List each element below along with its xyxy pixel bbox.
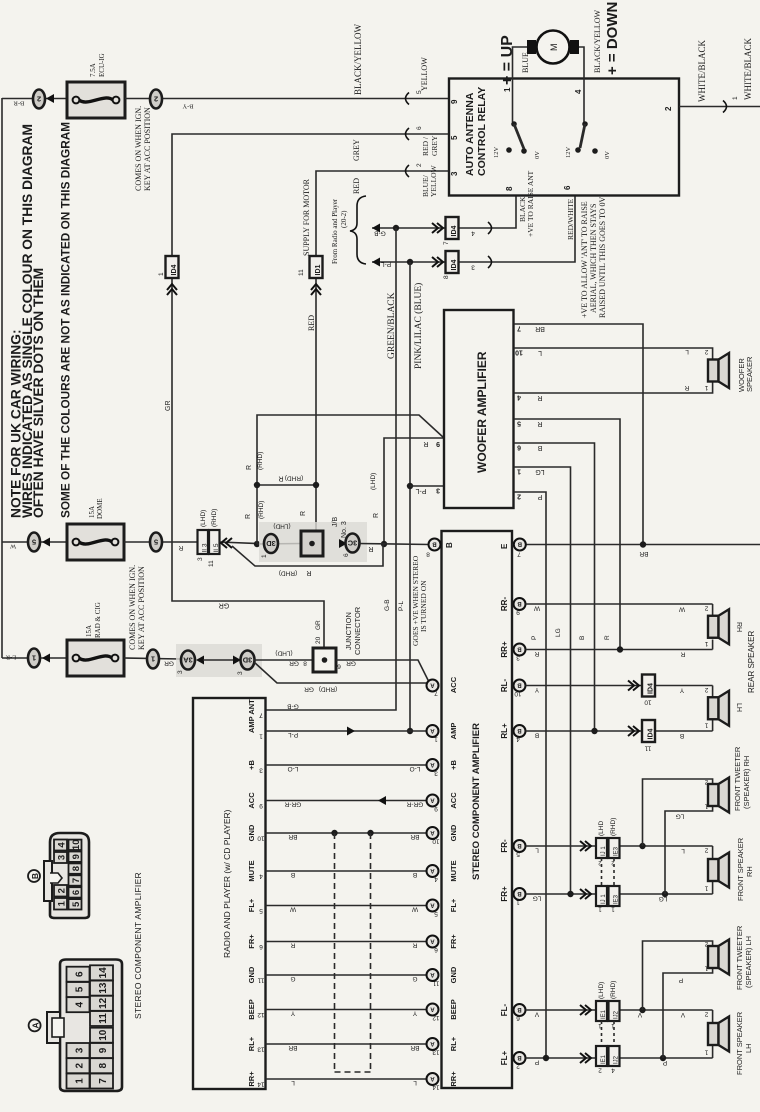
svg-text:7: 7 xyxy=(259,712,263,719)
svg-text:WOOFER AMPLIFIER: WOOFER AMPLIFIER xyxy=(475,351,489,473)
svg-text:RAISED UNTIL THIS GOES TO 0V: RAISED UNTIL THIS GOES TO 0V xyxy=(598,197,607,318)
svg-text:B: B xyxy=(517,1054,522,1060)
svg-text:(RHD): (RHD) xyxy=(258,501,265,519)
svg-text:RED: RED xyxy=(307,315,316,331)
svg-text:15A: 15A xyxy=(85,625,93,637)
svg-text:IE1: IE1 xyxy=(601,1054,607,1064)
svg-text:ID1: ID1 xyxy=(315,265,322,276)
svg-text:P-L: P-L xyxy=(381,261,392,268)
svg-text:JUNCTION: JUNCTION xyxy=(344,612,353,650)
svg-text:IJ2: IJ2 xyxy=(614,1055,620,1064)
svg-text:7: 7 xyxy=(517,325,521,332)
svg-text:COMES ON WHEN IGN.: COMES ON WHEN IGN. xyxy=(134,106,143,191)
svg-text:L-O: L-O xyxy=(288,765,299,772)
svg-text:6: 6 xyxy=(416,126,423,130)
svg-text:1: 1 xyxy=(151,654,155,663)
svg-text:IE3: IE3 xyxy=(614,846,620,856)
svg-text:G-B: G-B xyxy=(287,703,299,710)
svg-text:14: 14 xyxy=(432,1084,440,1091)
svg-text:BR: BR xyxy=(288,1044,297,1051)
svg-text:BEEP: BEEP xyxy=(247,999,256,1019)
svg-text:9: 9 xyxy=(450,99,459,104)
svg-text:RAD & CIG: RAD & CIG xyxy=(94,602,102,638)
svg-text:RL+: RL+ xyxy=(500,723,509,739)
svg-text:COMES ON WHEN IGN.: COMES ON WHEN IGN. xyxy=(128,565,137,650)
svg-text:+B: +B xyxy=(449,760,458,770)
svg-text:IE3: IE3 xyxy=(614,894,620,904)
svg-text:ACC: ACC xyxy=(449,676,458,693)
svg-text:IJ2: IJ2 xyxy=(614,1010,620,1019)
svg-text:B: B xyxy=(517,842,522,848)
svg-text:4: 4 xyxy=(516,736,520,743)
svg-text:4: 4 xyxy=(574,89,583,94)
svg-text:RL+: RL+ xyxy=(449,1036,458,1051)
svg-text:V: V xyxy=(534,1011,539,1018)
svg-text:7: 7 xyxy=(517,551,521,558)
svg-text:6: 6 xyxy=(516,1015,520,1022)
svg-text:6: 6 xyxy=(259,943,263,950)
svg-text:ID4: ID4 xyxy=(648,729,655,740)
svg-text:P-L: P-L xyxy=(288,731,299,738)
svg-text:L: L xyxy=(685,348,689,355)
svg-text:G-B: G-B xyxy=(384,599,391,611)
svg-text:GR: GR xyxy=(304,686,314,693)
svg-text:GND: GND xyxy=(247,966,256,983)
svg-text:GR: GR xyxy=(289,660,299,667)
svg-text:R: R xyxy=(604,635,611,640)
svg-text:8: 8 xyxy=(98,1062,109,1068)
svg-text:B: B xyxy=(579,636,586,640)
svg-text:7: 7 xyxy=(98,1078,109,1084)
svg-text:1: 1 xyxy=(261,554,268,558)
svg-text:PINK/LILAC (BLUE): PINK/LILAC (BLUE) xyxy=(413,283,424,369)
svg-text:1: 1 xyxy=(704,640,708,647)
svg-text:2: 2 xyxy=(75,1062,86,1068)
svg-text:1: 1 xyxy=(259,733,263,740)
svg-text:A: A xyxy=(430,727,435,733)
svg-text:B: B xyxy=(413,871,417,878)
svg-text:ACC: ACC xyxy=(247,792,256,809)
svg-text:STEREO COMPONENT AMPLIFIER: STEREO COMPONENT AMPLIFIER xyxy=(471,723,482,880)
svg-text:B: B xyxy=(517,681,522,687)
svg-text:8: 8 xyxy=(303,660,307,667)
svg-text:9: 9 xyxy=(516,609,520,616)
svg-text:V: V xyxy=(637,1011,642,1018)
svg-text:1: 1 xyxy=(57,900,68,906)
svg-text:+ = DOWN: + = DOWN xyxy=(604,2,621,75)
svg-text:P: P xyxy=(679,977,683,984)
svg-text:LG: LG xyxy=(533,895,542,902)
svg-text:2: 2 xyxy=(37,94,41,103)
svg-text:GR: GR xyxy=(164,660,174,667)
svg-text:B: B xyxy=(517,540,522,546)
svg-text:FL+: FL+ xyxy=(500,1050,509,1065)
svg-text:R: R xyxy=(373,513,380,518)
svg-text:LG: LG xyxy=(676,813,685,820)
svg-text:10: 10 xyxy=(644,699,652,706)
svg-text:AMP ANT: AMP ANT xyxy=(247,699,256,733)
svg-text:GND: GND xyxy=(449,824,458,841)
svg-text:L: L xyxy=(291,1079,295,1086)
svg-text:L-R: L-R xyxy=(5,654,16,661)
svg-text:1: 1 xyxy=(704,384,708,391)
svg-text:R: R xyxy=(368,545,373,552)
svg-text:STEREO COMPONENT AMPLIFIER: STEREO COMPONENT AMPLIFIER xyxy=(133,872,143,1019)
svg-text:(RHD): (RHD) xyxy=(319,686,337,693)
svg-text:8: 8 xyxy=(505,186,514,191)
svg-text:W: W xyxy=(678,606,685,613)
svg-text:9: 9 xyxy=(436,440,440,447)
svg-text:13: 13 xyxy=(432,1049,440,1056)
svg-text:(20-2): (20-2) xyxy=(340,210,348,228)
svg-text:II 5: II 5 xyxy=(213,543,220,552)
svg-text:11: 11 xyxy=(432,980,439,987)
svg-text:3C: 3C xyxy=(347,538,357,547)
svg-text:3A: 3A xyxy=(183,655,193,664)
svg-text:RADIO AND PLAYER (w/ CD PLAYER: RADIO AND PLAYER (w/ CD PLAYER) xyxy=(222,809,232,958)
svg-text:ID4: ID4 xyxy=(648,683,655,694)
svg-text:FL+: FL+ xyxy=(449,898,458,912)
svg-text:B: B xyxy=(445,542,454,548)
svg-text:RH: RH xyxy=(745,866,754,877)
svg-text:3D: 3D xyxy=(266,539,276,548)
svg-text:LH: LH xyxy=(744,1043,753,1053)
svg-text:6: 6 xyxy=(563,185,572,190)
svg-text:KEY AT ACC POSITION: KEY AT ACC POSITION xyxy=(137,566,146,650)
svg-text:AUTO ANTENNA: AUTO ANTENNA xyxy=(464,92,476,176)
svg-text:12: 12 xyxy=(98,997,109,1009)
svg-text:1: 1 xyxy=(75,1078,86,1084)
svg-text:R: R xyxy=(534,650,539,657)
svg-text:P: P xyxy=(535,1059,539,1066)
svg-text:RL-: RL- xyxy=(500,679,509,693)
svg-text:IJ 1: IJ 1 xyxy=(601,894,607,904)
svg-text:GND: GND xyxy=(449,966,458,983)
svg-text:12: 12 xyxy=(257,1011,265,1018)
svg-text:LH: LH xyxy=(735,703,742,712)
svg-text:B: B xyxy=(517,1006,522,1012)
svg-text:13: 13 xyxy=(98,982,109,994)
svg-text:3: 3 xyxy=(75,1047,86,1053)
svg-text:14: 14 xyxy=(98,967,109,979)
svg-text:B: B xyxy=(517,645,522,651)
svg-text:10: 10 xyxy=(432,838,440,845)
svg-text:WHITE/BLACK: WHITE/BLACK xyxy=(697,40,707,102)
svg-text:5: 5 xyxy=(154,537,158,546)
svg-text:5: 5 xyxy=(259,907,263,914)
svg-text:R: R xyxy=(684,384,689,391)
svg-text:(LHD): (LHD) xyxy=(275,650,292,657)
svg-text:RL+: RL+ xyxy=(247,1036,256,1051)
svg-text:2: 2 xyxy=(704,1011,708,1018)
svg-text:ACC: ACC xyxy=(449,792,458,809)
svg-text:3: 3 xyxy=(516,654,520,661)
svg-text:B: B xyxy=(537,444,542,451)
svg-text:AERIAL, WHICH THEN STAYS: AERIAL, WHICH THEN STAYS xyxy=(589,204,598,313)
svg-text:3: 3 xyxy=(434,770,438,777)
svg-text:4: 4 xyxy=(611,1067,615,1074)
svg-text:(RHD): (RHD) xyxy=(211,509,218,527)
svg-text:SPEAKER: SPEAKER xyxy=(745,356,754,392)
svg-text:(RHD): (RHD) xyxy=(279,570,297,577)
svg-text:BR: BR xyxy=(639,550,648,557)
svg-text:RR+: RR+ xyxy=(247,1071,256,1087)
svg-text:II 3: II 3 xyxy=(202,543,209,552)
svg-text:W: W xyxy=(533,605,540,612)
svg-text:5: 5 xyxy=(517,420,521,427)
svg-text:(RHD): (RHD) xyxy=(285,475,303,482)
svg-text:7: 7 xyxy=(71,878,82,883)
svg-text:ECU-IG: ECU-IG xyxy=(98,53,106,77)
svg-text:CONTROL RELAY: CONTROL RELAY xyxy=(476,87,488,176)
svg-text:5: 5 xyxy=(75,986,86,992)
svg-text:R: R xyxy=(537,394,542,401)
svg-text:GR: GR xyxy=(165,401,172,412)
svg-text:BLACK/YELLOW: BLACK/YELLOW xyxy=(593,9,602,73)
svg-text:RED /: RED / xyxy=(421,136,430,156)
svg-text:1: 1 xyxy=(434,736,438,743)
svg-text:P-L: P-L xyxy=(415,487,426,494)
svg-text:J/B: J/B xyxy=(332,517,339,527)
svg-text:Y: Y xyxy=(534,686,539,693)
svg-text:P-L: P-L xyxy=(398,601,405,612)
svg-text:OFTEN HAVE SILVER DOTS ON THEM: OFTEN HAVE SILVER DOTS ON THEM xyxy=(31,268,46,518)
svg-text:4: 4 xyxy=(259,873,263,880)
svg-text:1: 1 xyxy=(32,653,36,662)
svg-text:11: 11 xyxy=(98,1013,109,1024)
svg-text:RED/WHITE: RED/WHITE xyxy=(566,198,575,240)
svg-text:GR-R: GR-R xyxy=(406,801,423,808)
svg-text:5: 5 xyxy=(516,851,520,858)
svg-text:2: 2 xyxy=(517,493,521,500)
svg-text:FRONT TWEETER: FRONT TWEETER xyxy=(733,746,742,811)
svg-text:2: 2 xyxy=(704,348,708,355)
svg-text:BLACK/YELLOW: BLACK/YELLOW xyxy=(353,24,363,95)
svg-text:DOME: DOME xyxy=(96,498,104,519)
svg-text:10: 10 xyxy=(71,840,82,851)
svg-text:MUTE: MUTE xyxy=(247,860,256,881)
svg-text:FRONT SPEAKER: FRONT SPEAKER xyxy=(735,1011,744,1075)
svg-text:4: 4 xyxy=(434,876,438,883)
svg-text:A: A xyxy=(430,867,435,873)
svg-text:B: B xyxy=(432,540,437,546)
svg-text:6: 6 xyxy=(75,971,86,977)
svg-text:B-R: B-R xyxy=(13,100,25,107)
svg-text:3D: 3D xyxy=(242,655,252,664)
svg-text:2: 2 xyxy=(598,1067,602,1074)
svg-text:1: 1 xyxy=(516,899,520,906)
svg-text:A: A xyxy=(430,681,435,687)
svg-text:ID4: ID4 xyxy=(451,260,458,271)
svg-text:L-O: L-O xyxy=(410,765,421,772)
svg-text:(LHD): (LHD) xyxy=(370,473,377,490)
svg-text:4: 4 xyxy=(75,1001,86,1007)
svg-text:3: 3 xyxy=(197,557,204,561)
svg-text:SUPPLY FOR MOTOR: SUPPLY FOR MOTOR xyxy=(302,178,311,256)
svg-text:4: 4 xyxy=(57,842,68,848)
svg-text:3: 3 xyxy=(177,670,184,674)
svg-text:11: 11 xyxy=(298,269,305,276)
svg-text:2: 2 xyxy=(704,686,708,693)
svg-text:14: 14 xyxy=(257,1081,265,1088)
svg-text:BR: BR xyxy=(288,833,297,840)
svg-text:4: 4 xyxy=(471,230,475,237)
svg-text:(LHD): (LHD) xyxy=(273,523,290,530)
svg-text:15A: 15A xyxy=(88,506,96,518)
svg-text:P: P xyxy=(531,636,538,640)
svg-text:11: 11 xyxy=(257,977,264,984)
svg-text:FR-: FR- xyxy=(500,839,509,853)
svg-text:R: R xyxy=(246,465,253,470)
svg-text:GND: GND xyxy=(247,824,256,841)
svg-text:6: 6 xyxy=(517,444,521,451)
svg-text:A: A xyxy=(430,1040,435,1046)
svg-text:A: A xyxy=(430,971,435,977)
svg-text:6: 6 xyxy=(337,663,341,670)
svg-text:A: A xyxy=(430,796,435,802)
svg-text:IS TURNED ON: IS TURNED ON xyxy=(419,580,428,632)
svg-text:Y: Y xyxy=(679,687,684,694)
svg-text:IE1: IE1 xyxy=(601,1009,607,1019)
svg-text:FRONT TWEETER: FRONT TWEETER xyxy=(735,925,744,990)
svg-text:P: P xyxy=(537,493,542,500)
svg-text:BEEP: BEEP xyxy=(449,999,458,1019)
svg-text:10: 10 xyxy=(98,1029,109,1041)
svg-text:V: V xyxy=(680,1011,685,1018)
svg-text:12V: 12V xyxy=(565,147,572,159)
svg-text:FR+: FR+ xyxy=(247,934,256,949)
svg-text:GR-R: GR-R xyxy=(284,801,301,808)
svg-text:GREY: GREY xyxy=(430,135,439,156)
svg-text:B: B xyxy=(517,890,522,896)
svg-text:G: G xyxy=(290,975,295,982)
svg-text:Y: Y xyxy=(412,1010,417,1017)
svg-text:R: R xyxy=(412,942,417,949)
svg-text:G: G xyxy=(412,975,417,982)
svg-text:1: 1 xyxy=(732,96,739,100)
svg-text:+VE TO ALLOW 'ANT' TO RAISE: +VE TO ALLOW 'ANT' TO RAISE xyxy=(580,201,589,318)
svg-text:MUTE: MUTE xyxy=(449,860,458,881)
svg-text:1: 1 xyxy=(598,906,602,913)
svg-text:(RHD): (RHD) xyxy=(257,452,264,470)
svg-text:3: 3 xyxy=(471,264,475,271)
svg-text:10: 10 xyxy=(257,835,265,842)
svg-text:(LHD): (LHD) xyxy=(598,982,605,999)
svg-text:3: 3 xyxy=(450,171,459,176)
svg-text:BR: BR xyxy=(410,833,419,840)
svg-text:GR: GR xyxy=(315,620,322,630)
svg-text:3: 3 xyxy=(436,487,440,494)
svg-text:(SPEAKER) RH: (SPEAKER) RH xyxy=(742,756,751,809)
svg-text:1: 1 xyxy=(704,885,708,892)
svg-text:FL-: FL- xyxy=(500,1003,509,1016)
svg-text:5: 5 xyxy=(32,537,36,546)
svg-text:1: 1 xyxy=(158,272,165,276)
svg-text:10: 10 xyxy=(515,349,523,356)
svg-text:From Radio and Player: From Radio and Player xyxy=(331,198,339,264)
svg-text:Y: Y xyxy=(290,1010,295,1017)
svg-text:8: 8 xyxy=(71,866,82,871)
svg-text:L: L xyxy=(538,349,542,356)
svg-text:4: 4 xyxy=(517,394,521,401)
svg-text:R: R xyxy=(278,475,283,482)
svg-text:R: R xyxy=(306,569,311,576)
svg-text:A: A xyxy=(430,829,435,835)
svg-text:9: 9 xyxy=(71,854,82,859)
svg-text:B: B xyxy=(517,727,522,733)
svg-text:(RHD): (RHD) xyxy=(610,981,617,999)
svg-text:7.5A: 7.5A xyxy=(89,63,97,77)
svg-text:LG: LG xyxy=(659,895,668,902)
svg-text:FL+: FL+ xyxy=(247,898,256,912)
svg-text:R: R xyxy=(680,651,685,658)
svg-text:1: 1 xyxy=(704,722,708,729)
svg-text:2: 2 xyxy=(664,106,673,111)
svg-text:9: 9 xyxy=(98,1047,109,1053)
svg-text:KEY AT ACC POSITION: KEY AT ACC POSITION xyxy=(143,107,152,191)
svg-text:R: R xyxy=(423,440,428,447)
svg-text:2: 2 xyxy=(416,163,423,167)
svg-text:5: 5 xyxy=(450,135,459,140)
svg-text:7: 7 xyxy=(434,690,438,697)
svg-text:0V: 0V xyxy=(604,151,611,159)
svg-text:A: A xyxy=(31,1022,41,1028)
svg-text:20: 20 xyxy=(315,636,322,644)
svg-text:RR+: RR+ xyxy=(449,1071,458,1087)
svg-text:+B: +B xyxy=(247,760,256,770)
svg-text:B: B xyxy=(680,732,684,739)
svg-text:(LHD): (LHD) xyxy=(200,510,207,527)
svg-text:R: R xyxy=(537,420,542,427)
svg-text:1: 1 xyxy=(611,906,615,913)
svg-text:11: 11 xyxy=(644,745,651,752)
svg-text:W: W xyxy=(9,543,16,550)
svg-text:W: W xyxy=(289,906,296,913)
svg-text:E: E xyxy=(500,543,509,549)
svg-text:YELLOW: YELLOW xyxy=(420,57,429,91)
svg-text:B: B xyxy=(535,732,539,739)
svg-text:CONNECTOR: CONNECTOR xyxy=(353,606,362,655)
svg-text:GR: GR xyxy=(219,602,230,609)
svg-text:WHITE/BLACK: WHITE/BLACK xyxy=(743,38,753,100)
svg-text:3: 3 xyxy=(57,855,68,860)
svg-text:R: R xyxy=(300,511,307,516)
svg-text:GREEN/BLACK: GREEN/BLACK xyxy=(387,292,397,359)
svg-text:L: L xyxy=(413,1079,417,1086)
svg-text:LG: LG xyxy=(555,628,562,637)
svg-text:G-B: G-B xyxy=(374,230,386,237)
svg-text:FR+: FR+ xyxy=(500,886,509,902)
svg-text:8: 8 xyxy=(443,275,450,279)
svg-text:1: 1 xyxy=(517,468,521,475)
svg-text:IJ 1: IJ 1 xyxy=(601,846,607,856)
svg-text:12V: 12V xyxy=(493,147,500,159)
svg-text:REAR SPEAKER: REAR SPEAKER xyxy=(747,631,756,693)
svg-text:2: 2 xyxy=(704,605,708,612)
svg-text:R: R xyxy=(245,514,252,519)
svg-text:ID4: ID4 xyxy=(451,226,458,237)
svg-text:L: L xyxy=(681,847,685,854)
svg-text:2: 2 xyxy=(154,94,158,103)
svg-text:5: 5 xyxy=(434,910,438,917)
svg-text:(RHD): (RHD) xyxy=(610,818,617,836)
svg-text:+ = UP: + = UP xyxy=(499,35,516,85)
svg-text:1: 1 xyxy=(503,87,512,92)
svg-text:RR-: RR- xyxy=(500,597,509,612)
svg-text:9: 9 xyxy=(434,805,438,812)
svg-text:A: A xyxy=(430,901,435,907)
svg-text:W: W xyxy=(411,906,418,913)
